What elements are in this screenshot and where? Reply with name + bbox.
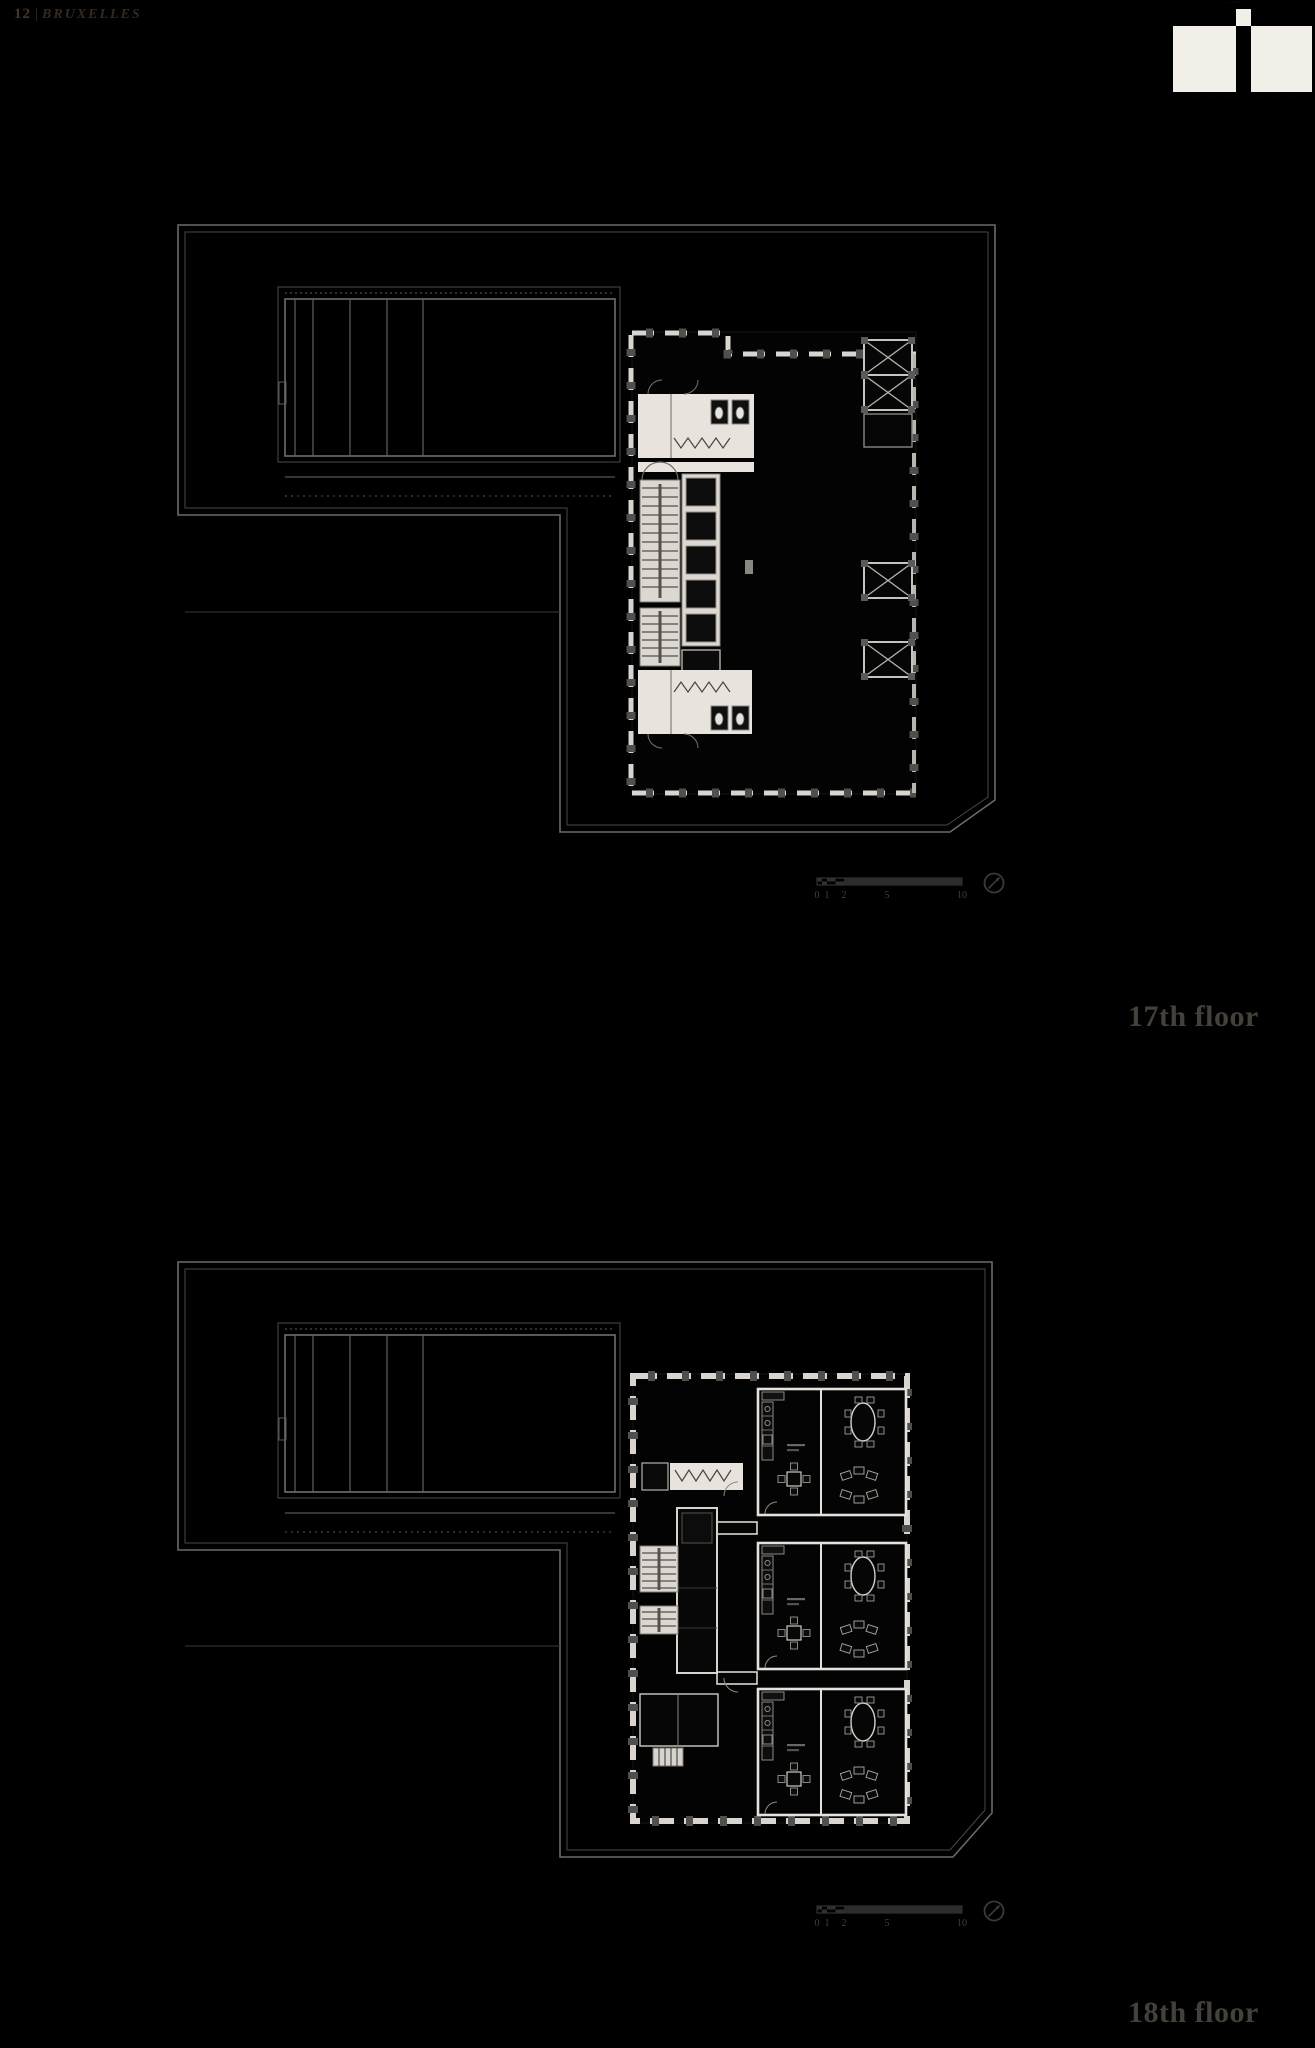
logo-top-text: ····· — [1226, 1, 1239, 6]
corridor-link — [717, 1522, 757, 1534]
north-arrow-icon — [985, 1902, 1004, 1921]
corridor — [638, 462, 754, 472]
header-title: BRUXELLES — [42, 7, 142, 22]
unit — [758, 1543, 906, 1669]
stair-upper — [640, 1546, 678, 1592]
floor-label-18: 18th floor — [1128, 1996, 1259, 2030]
stair-lower — [640, 608, 680, 666]
logo-notch — [1236, 9, 1251, 26]
x-brace — [861, 639, 915, 680]
floor-label-17: 17th floor — [1128, 1000, 1259, 1034]
x-brace — [861, 372, 915, 413]
brace-frame — [864, 414, 912, 447]
logo-bar — [1236, 26, 1251, 92]
tower — [633, 1374, 907, 1823]
scale-label: 0 — [815, 890, 820, 901]
scale-bar: 0 1 2 5 10 — [815, 1906, 968, 1929]
left-wing — [278, 287, 620, 496]
logo-tagline: ·· ···· ······· ··· ········ ·· ···· ···… — [1164, 94, 1315, 99]
scale-label: 0 — [815, 1918, 820, 1929]
floor-plan-18: 0 1 2 5 10 — [168, 1258, 1013, 1948]
scale-label: 10 — [957, 1918, 967, 1929]
scale-label: 2 — [842, 1918, 847, 1929]
document-page: 12|BRUXELLES ····· ·· ···· ······· ··· ·… — [0, 0, 1315, 2048]
corridor-link — [717, 1672, 757, 1684]
page-number: 12 — [14, 6, 31, 22]
unit — [758, 1689, 906, 1815]
tower — [631, 332, 916, 794]
north-arrow-icon — [985, 874, 1004, 893]
elevator-shaft — [677, 1508, 717, 1673]
logo: ····· ·· ···· ······· ··· ········ ·· ··… — [1164, 0, 1315, 104]
service-room — [640, 1694, 718, 1746]
core-fixture — [745, 560, 753, 574]
page-header: 12|BRUXELLES — [14, 4, 142, 24]
exit-steps — [653, 1748, 683, 1766]
logo-mark — [1173, 26, 1312, 92]
elevator-bank — [682, 474, 720, 646]
left-wing — [278, 1323, 620, 1532]
lobby-room — [642, 1463, 668, 1490]
unit — [758, 1389, 906, 1515]
scale-label: 5 — [885, 890, 890, 901]
stair-upper — [640, 462, 680, 602]
scale-label: 5 — [885, 1918, 890, 1929]
scale-label: 2 — [842, 890, 847, 901]
x-brace — [861, 337, 915, 378]
x-brace — [861, 560, 915, 601]
stair-lower — [640, 1606, 678, 1634]
sink-room — [670, 1463, 743, 1490]
scale-bar: 0 1 2 5 10 — [815, 878, 968, 901]
scale-label: 10 — [957, 890, 967, 901]
floor-plan-17: 0 1 2 5 10 — [168, 222, 1013, 912]
header-separator: | — [35, 6, 38, 22]
scale-label: 1 — [825, 890, 830, 901]
scale-label: 1 — [825, 1918, 830, 1929]
